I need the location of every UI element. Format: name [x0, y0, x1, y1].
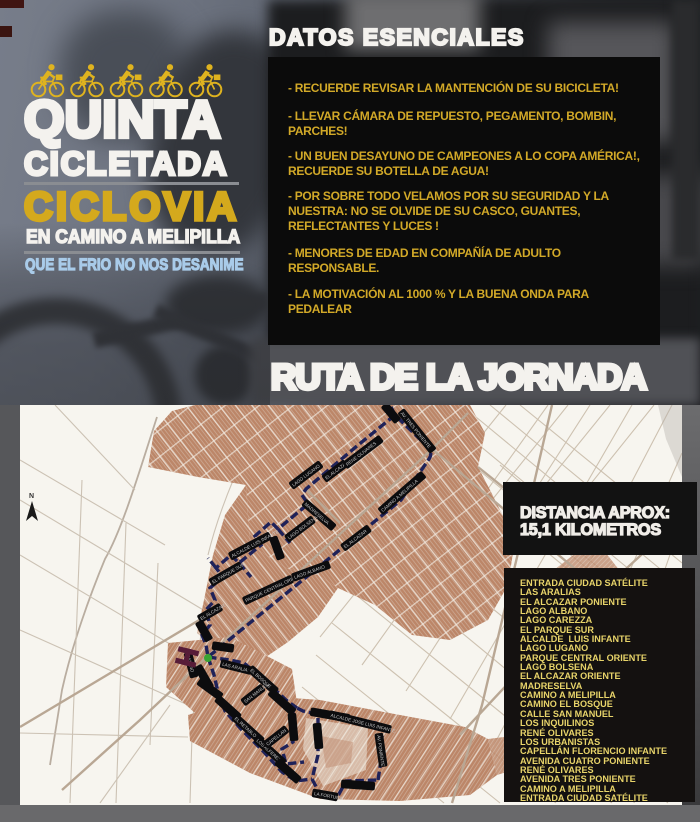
svg-text:N: N	[29, 493, 34, 500]
